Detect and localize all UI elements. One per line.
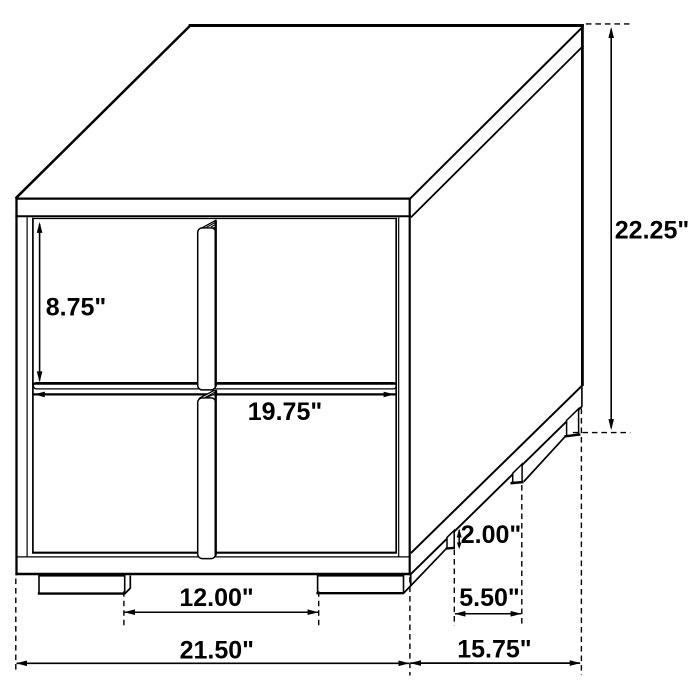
svg-text:21.50": 21.50" xyxy=(180,636,254,664)
svg-text:5.50": 5.50" xyxy=(459,584,520,612)
svg-text:12.00": 12.00" xyxy=(179,584,253,612)
svg-text:15.75": 15.75" xyxy=(457,636,531,664)
svg-text:19.75": 19.75" xyxy=(248,398,322,426)
svg-text:22.25": 22.25" xyxy=(615,216,689,244)
svg-text:2.00": 2.00" xyxy=(461,521,522,549)
svg-text:8.75": 8.75" xyxy=(46,294,107,322)
